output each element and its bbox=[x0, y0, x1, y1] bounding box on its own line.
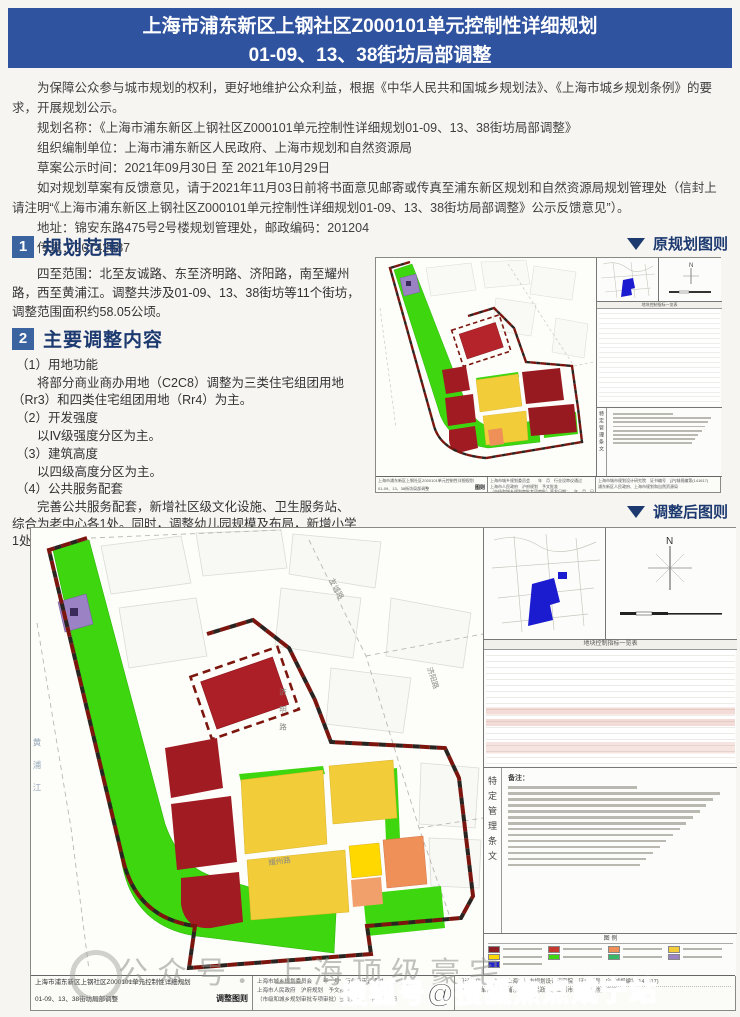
sheet-plan-name: 上海市浦东新区上钢社区Z000101单元控制性详细规划 bbox=[378, 478, 485, 484]
adjustment-item-4-title: （4）公共服务配套 bbox=[12, 481, 360, 498]
intro-paragraph: 为保障公众参与城市规划的权利，更好地维护公众利益，根据《中华人民共和国城乡规划法… bbox=[12, 78, 728, 118]
adjustment-item-3-body: 以四级高度分区为主。 bbox=[12, 464, 360, 481]
compass-scale-cell: N bbox=[659, 258, 722, 302]
notes-label: 备注： bbox=[508, 773, 731, 783]
feedback-instructions: 如对规划草案有反馈意见，请于2021年11月03日前将书面意见邮寄或传真至浦东新… bbox=[12, 178, 728, 218]
table-rows bbox=[599, 309, 720, 405]
adjustment-item-2-body: 以Ⅳ级强度分区为主。 bbox=[12, 428, 360, 445]
adjustment-item-1-body: 将部分商业商办用地（C2C8）调整为三类住宅组团用地（Rr3）和四类住宅组团用地… bbox=[12, 375, 360, 409]
dark-red-parcel bbox=[522, 368, 564, 404]
road-label-west: 黄浦江 bbox=[32, 737, 42, 805]
legend-color-swatch bbox=[608, 954, 620, 961]
original-plan-label-text: 原规划图则 bbox=[653, 233, 728, 254]
watermark-sohu-text: 搜狐号@搜狐焦点咸宁站 bbox=[340, 970, 659, 1012]
approval-line: （市级和城乡规划审批专项审批）签发日期： 年 月 日 bbox=[490, 489, 593, 492]
adjustment-item-3-title: （3）建筑高度 bbox=[12, 446, 360, 463]
adjustment-item-2-title: （2）开发强度 bbox=[12, 410, 360, 427]
yellow-parcel bbox=[241, 770, 327, 854]
section-1-body: 四至范围：北至友诚路、东至济明路、济阳路，南至耀州路，西至黄浦江。调整共涉及01… bbox=[12, 265, 360, 321]
locator-map bbox=[484, 528, 606, 640]
plan-name-line: 规划名称：《上海市浦东新区上钢社区Z000101单元控制性详细规划01-09、1… bbox=[12, 118, 728, 138]
adjusted-plan-side-panel: N 地块控制指标一览表 特定管理条文 备注： bbox=[483, 528, 736, 976]
original-plan-drawing bbox=[376, 258, 596, 477]
legend-swatches bbox=[488, 946, 733, 968]
dark-red-parcel bbox=[528, 404, 577, 436]
legend-color-swatch bbox=[548, 946, 560, 953]
table-title: 地块控制指标一览表 bbox=[597, 302, 722, 309]
parcel-indicator-table: 地块控制指标一览表 bbox=[484, 640, 737, 768]
approval-line: 上海市城乡规划委员会 年 月 行业设审议通过 bbox=[490, 478, 593, 484]
section-1-header: 1 规划范围 bbox=[12, 233, 360, 260]
compass-scale-cell: N bbox=[606, 528, 737, 640]
orange-parcel bbox=[351, 877, 383, 907]
adjusted-plan-label-text: 调整后图则 bbox=[653, 501, 728, 522]
compile-unit-line: 浦东新区人民政府、上海市规划和自然资源局 bbox=[598, 484, 718, 490]
notes-placeholder-lines bbox=[613, 413, 716, 444]
design-unit-line: 上海市城市规划设计研究院 证书编号 [沪]城规编第(141617) bbox=[598, 478, 718, 484]
red-parcel bbox=[171, 796, 237, 870]
notes-placeholder-lines bbox=[508, 786, 731, 866]
title-line-2: 01-09、13、38街坊局部调整 bbox=[8, 42, 732, 71]
original-plan-title-block: 上海市浦东新区上钢社区Z000101单元控制性详细规划 01-09、13、38街… bbox=[376, 476, 720, 492]
legend-color-swatch bbox=[548, 954, 560, 961]
triangle-down-icon bbox=[627, 506, 645, 518]
vertical-clause-label: 特定管理条文 bbox=[597, 408, 607, 476]
orange-parcel bbox=[383, 836, 427, 888]
red-parcel bbox=[442, 366, 470, 394]
document-title-banner: 上海市浦东新区上钢社区Z000101单元控制性详细规划 01-09、13、38街… bbox=[8, 8, 732, 68]
locator-map bbox=[597, 258, 659, 302]
red-parcel bbox=[445, 394, 476, 426]
triangle-down-icon bbox=[627, 238, 645, 250]
road-label-east: 济明路 bbox=[278, 687, 287, 741]
legend-color-swatch bbox=[608, 946, 620, 953]
legend-title: 图 例 bbox=[488, 935, 733, 944]
original-plan-figure-label: 原规划图则 bbox=[627, 233, 728, 254]
title-line-1: 上海市浦东新区上钢社区Z000101单元控制性详细规划 bbox=[8, 13, 732, 42]
road-label-east-2: 济阳路 bbox=[425, 666, 442, 691]
table-rows bbox=[486, 650, 735, 765]
organizer-line: 组织编制单位：上海市浦东新区人民政府、上海市规划和自然资源局 bbox=[12, 138, 728, 158]
section-2-header: 2 主要调整内容 bbox=[12, 325, 360, 352]
adjusted-plan-figure-label: 调整后图则 bbox=[627, 501, 728, 522]
compass-north-label: N bbox=[666, 536, 673, 547]
yellow-parcel bbox=[476, 374, 522, 412]
red-parcel bbox=[181, 872, 243, 928]
adjustment-item-1-title: （1）用地功能 bbox=[12, 357, 360, 374]
original-plan-map: N 地块控制指标一览表 特定管理条文 上海 bbox=[375, 257, 721, 493]
sections-column: 1 规划范围 四至范围：北至友诚路、东至济明路、济阳路，南至耀州路，西至黄浦江。… bbox=[12, 230, 360, 551]
bright-yellow-parcel bbox=[349, 843, 382, 878]
locator-highlight-area bbox=[621, 278, 635, 297]
vertical-clause-label: 特定管理条文 bbox=[484, 768, 502, 933]
watermark-logo-circle bbox=[70, 950, 122, 1002]
notes-section: 特定管理条文 备注： bbox=[484, 768, 737, 934]
original-plan-side-panel: N 地块控制指标一览表 特定管理条文 bbox=[596, 258, 721, 477]
sheet-type-label: 调整图则 bbox=[216, 993, 248, 1004]
yellow-parcel bbox=[247, 850, 349, 920]
parcel-indicator-table: 地块控制指标一览表 bbox=[597, 302, 722, 408]
adjusted-plan-drawing: 友诚路 济明路 济阳路 耀州路 黄浦江 bbox=[31, 528, 483, 976]
orange-parcel bbox=[488, 428, 504, 446]
red-parcel bbox=[459, 322, 503, 358]
legend-color-swatch bbox=[668, 954, 680, 961]
table-title: 地块控制指标一览表 bbox=[484, 640, 737, 650]
red-parcel bbox=[165, 738, 223, 798]
section-1-number-badge: 1 bbox=[12, 236, 34, 258]
legend-section: 图 例 bbox=[484, 934, 737, 941]
publicity-period-line: 草案公示时间：2021年09月30日 至 2021年10月29日 bbox=[12, 158, 728, 178]
sheet-plan-subname: 01-09、13、38街坊局部调整 bbox=[378, 486, 429, 492]
section-2-number-badge: 2 bbox=[12, 328, 34, 350]
legend-color-swatch bbox=[668, 946, 680, 953]
adjusted-plan-map: 友诚路 济明路 济阳路 耀州路 黄浦江 N bbox=[30, 527, 736, 1011]
sheet-type-label: 图则 bbox=[475, 486, 485, 492]
planning-announcement-page: 上海市浦东新区上钢社区Z000101单元控制性详细规划 01-09、13、38街… bbox=[0, 0, 740, 1017]
locator-highlight-area bbox=[528, 578, 560, 626]
notes-section: 特定管理条文 bbox=[597, 408, 722, 477]
section-2-title: 主要调整内容 bbox=[43, 325, 163, 352]
section-1-title: 规划范围 bbox=[43, 233, 123, 260]
yellow-parcel bbox=[329, 760, 397, 824]
